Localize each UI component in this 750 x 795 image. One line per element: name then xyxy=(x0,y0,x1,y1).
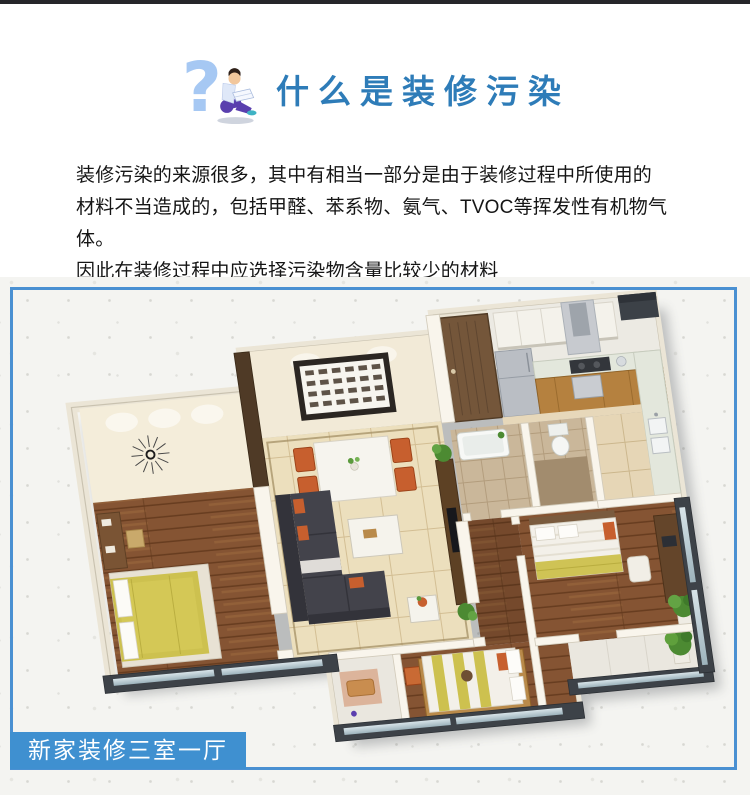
lounge-chair xyxy=(346,679,375,697)
question-mark-person-icon: ? xyxy=(180,50,268,128)
floor-plan-image xyxy=(13,290,734,767)
article-header: ? 什么是装修污染 xyxy=(0,46,750,132)
apartment xyxy=(55,291,724,767)
bedroom-right xyxy=(517,501,701,646)
top-bar xyxy=(0,0,750,4)
intro-paragraph: 装修污染的来源很多，其中有相当一部分是由于装修过程中所使用的 材料不当造成的，包… xyxy=(76,160,684,288)
sink xyxy=(648,418,667,435)
page-title: 什么是装修污染 xyxy=(276,65,570,113)
chair xyxy=(627,555,652,582)
figure-section: 新家装修三室一厅 xyxy=(0,277,750,795)
figure-caption: 新家装修三室一厅 xyxy=(10,732,246,769)
toilet xyxy=(548,423,569,436)
floor-plan-frame: 新家装修三室一厅 xyxy=(10,287,737,770)
living-room xyxy=(262,421,481,660)
dining-area xyxy=(249,334,449,438)
svg-text:?: ? xyxy=(182,50,222,128)
